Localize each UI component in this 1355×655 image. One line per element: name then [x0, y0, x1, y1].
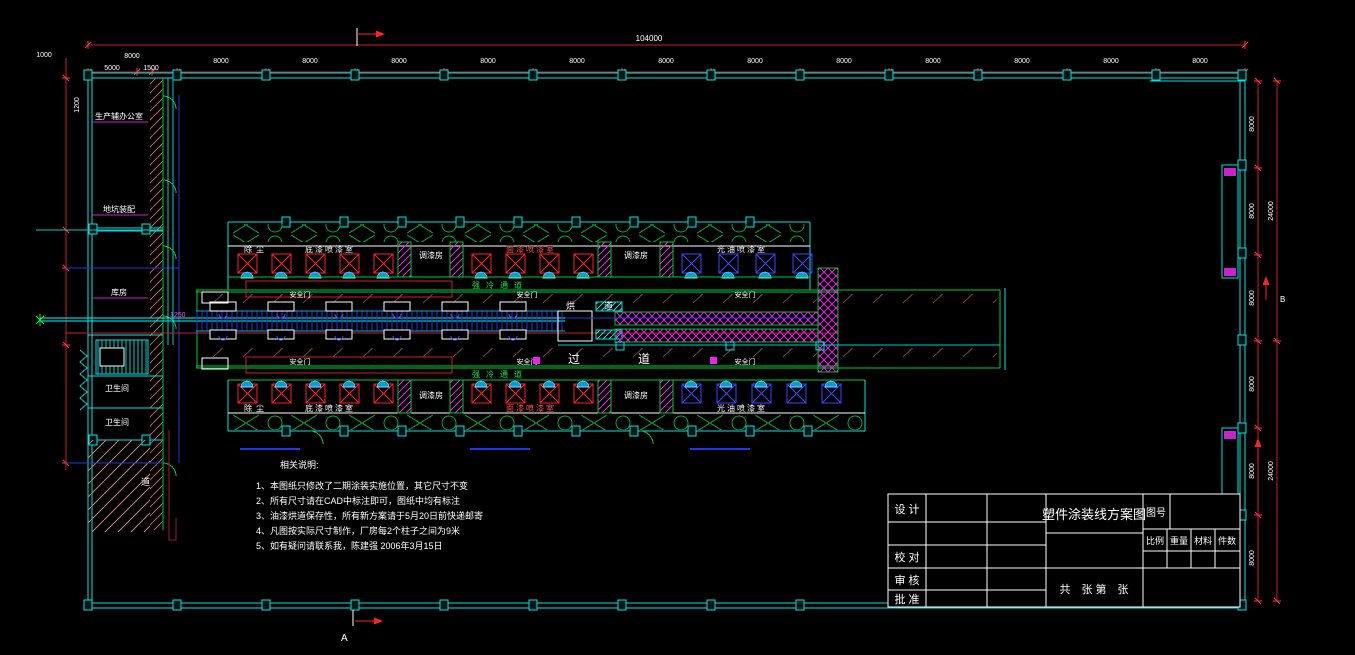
title-row-approve: 批 准 [894, 592, 919, 606]
note-item: 1、本图纸只修改了二期涂装实施位置，其它尺寸不变 [256, 480, 468, 491]
room-label-paint-mixing: 调漆房 [419, 250, 443, 260]
partition-wall [598, 380, 611, 413]
dim-bay: 8000 [480, 58, 496, 65]
attr-header-material: 材料 [1194, 535, 1212, 546]
dim-total-104000: 104000 [636, 34, 663, 43]
ramp-label: 道 [141, 476, 150, 487]
dim-bay: 8000 [1249, 463, 1256, 479]
room-label-paint-mixing: 调漆房 [419, 390, 443, 400]
axis-arrow-icon [357, 31, 385, 38]
room-label-topcoat-booth: 面漆喷漆室 [506, 244, 556, 254]
room-label-dedust: 除尘 [244, 244, 268, 254]
roof-truss [228, 413, 865, 430]
door-block [710, 357, 717, 364]
title-row-review: 审 核 [894, 573, 919, 587]
dim-left-1200: 1200 [74, 97, 81, 113]
dim-bay: 8000 [1249, 550, 1256, 566]
passage-label-b: 道 [638, 352, 650, 366]
spray-booths-red [238, 384, 593, 403]
top-dimension-chain: 104000 8000 8000 8000 8000 8000 8000 800… [85, 34, 1248, 76]
exterior-steps [80, 350, 87, 410]
attr-header-scale: 比例 [1146, 535, 1164, 546]
room-label-dedust: 除尘 [244, 403, 268, 413]
dim-right-24000: 24000 [1268, 461, 1275, 481]
safety-door-label: 安全门 [735, 357, 756, 366]
room-label-toilet: 卫生间 [105, 417, 129, 427]
room-label-storeroom: 库房 [111, 287, 127, 297]
room-label-pit-assembly: 地坑装配 [103, 204, 135, 214]
dim-bay: 8000 [213, 58, 229, 65]
dim-bay: 8000 [302, 58, 318, 65]
room-label-paint-mixing: 调漆房 [624, 250, 648, 260]
dim-bay: 8000 [391, 58, 407, 65]
dim-bay: 8000 [569, 58, 585, 65]
title-row-design: 设 计 [894, 503, 919, 516]
title-block: 设 计 校 对 审 核 批 准 塑件涂装线方案图 图号 比例 重量 材料 件数 … [888, 494, 1240, 607]
safety-door-label: 安全门 [290, 357, 311, 366]
roof-truss [228, 224, 810, 242]
dim-bay: 8000 [1249, 290, 1256, 306]
dim-bay: 8000 [1103, 58, 1119, 65]
notes-block: 相关说明: 1、本图纸只修改了二期涂装实施位置，其它尺寸不变 2、所有尺寸请在C… [256, 459, 483, 551]
left-wing: 生产辅办公室 地坑装配 库房 卫生间 卫生间 道 [80, 78, 176, 540]
wall-edge-line [169, 430, 176, 540]
notes-heading: 相关说明: [280, 459, 319, 470]
partition-wall [598, 242, 611, 277]
room-label-primer-booth: 底漆喷漆室 [305, 403, 355, 413]
partition-wall [450, 242, 463, 277]
spray-booths-blue [682, 254, 812, 273]
attr-header-qty: 件数 [1218, 535, 1236, 546]
note-item: 3、油漆烘道保存性，所有新方案请于5月20日前快递邮寄 [256, 510, 483, 521]
title-row-check: 校 对 [894, 550, 919, 564]
cold-corridor-label: 强冷通道 [472, 280, 528, 290]
hatched-wall [150, 78, 163, 530]
sheet-count-text: 共 张 第 张 [1059, 582, 1128, 596]
dim-sub-5000: 5000 [104, 65, 120, 72]
line-start-marker [36, 314, 44, 326]
floor-plan-drawing: 104000 8000 8000 8000 8000 8000 8000 800… [0, 0, 1355, 655]
note-item: 4、凡图按实际尺寸制作，厂房每2个柱子之间为9米 [256, 525, 460, 536]
dim-bay: 8000 [1014, 58, 1030, 65]
room-label-primer-booth: 底漆喷漆室 [305, 244, 355, 254]
dim-bay: 8000 [658, 58, 674, 65]
room-label-office: 生产辅办公室 [95, 111, 143, 121]
axis-marker-a: A [341, 633, 348, 644]
room-label-toilet: 卫生间 [105, 383, 129, 393]
spray-booths-red [238, 254, 593, 273]
dim-bay: 8000 [1249, 203, 1256, 219]
partition-wall [660, 380, 673, 413]
dim-bay: 8000 [747, 58, 763, 65]
floor-hatch [202, 348, 997, 363]
axis-marker-b: B [1280, 295, 1285, 304]
dim-sub-1500: 1500 [143, 65, 159, 72]
attr-header-weight: 重量 [1170, 535, 1188, 546]
dim-bay: 8000 [1249, 116, 1256, 132]
safety-door-label: 安全门 [290, 290, 311, 299]
axis-arrow-icon [355, 618, 383, 625]
cold-corridor-label: 强冷通道 [472, 369, 528, 379]
partition-wall [450, 380, 463, 413]
stair-landing [100, 348, 124, 366]
axis-arrow-up-icon [1263, 276, 1270, 300]
right-wall-equipment [1222, 165, 1238, 532]
dim-left-1000: 1000 [36, 52, 52, 59]
paint-line-bottom-row: 除尘 底漆喷漆室 调漆房 面漆喷漆室 调漆房 光油喷漆室 [228, 380, 865, 449]
dim-right-24000: 24000 [1268, 201, 1275, 221]
axis-arrow-up-icon [1255, 438, 1262, 462]
door-block [533, 357, 540, 364]
oven-label-a: 烘 [566, 300, 575, 311]
oven-label-b: 道 [604, 300, 613, 311]
room-label-topcoat-booth: 面漆喷漆室 [506, 403, 556, 413]
room-label-varnish-booth: 光油喷漆室 [717, 403, 767, 413]
note-item: 2、所有尺寸请在CAD中标注即可，图纸中均有标注 [256, 495, 460, 506]
oven-return-tower [818, 268, 838, 372]
paint-line-top-row: 除尘 底漆喷漆室 调漆房 面漆喷漆室 调漆房 光油喷漆室 [228, 217, 812, 290]
drawing-no-label: 图号 [1146, 507, 1166, 519]
dim-bay: 8000 [836, 58, 852, 65]
partition-wall [398, 380, 411, 413]
partition-wall [660, 242, 673, 277]
note-item: 5、如有疑问请联系我，陈建强 2006年3月15日 [256, 540, 443, 551]
dim-bay: 8000 [124, 53, 140, 60]
drying-oven-band [615, 329, 818, 342]
conveyor-track [196, 311, 565, 331]
right-dimension-chain: 8000 8000 8000 8000 8000 8000 24000 2400… [1249, 78, 1285, 604]
safety-door-label: 安全门 [735, 290, 756, 299]
passage-label-a: 过 [568, 352, 580, 366]
dim-bay: 8000 [1249, 376, 1256, 392]
room-label-paint-mixing: 调漆房 [624, 390, 648, 400]
dim-bay: 8000 [925, 58, 941, 65]
cad-canvas: 104000 8000 8000 8000 8000 8000 8000 800… [0, 0, 1355, 655]
left-dimension: 1000 1200 [36, 52, 81, 470]
room-label-varnish-booth: 光油喷漆室 [717, 244, 767, 254]
dim-bay: 8000 [1192, 58, 1208, 65]
drawing-title: 塑件涂装线方案图 [1042, 507, 1146, 522]
partition-wall [398, 242, 411, 277]
booth-fans [241, 381, 837, 387]
safety-door-label: 安全门 [517, 290, 538, 299]
